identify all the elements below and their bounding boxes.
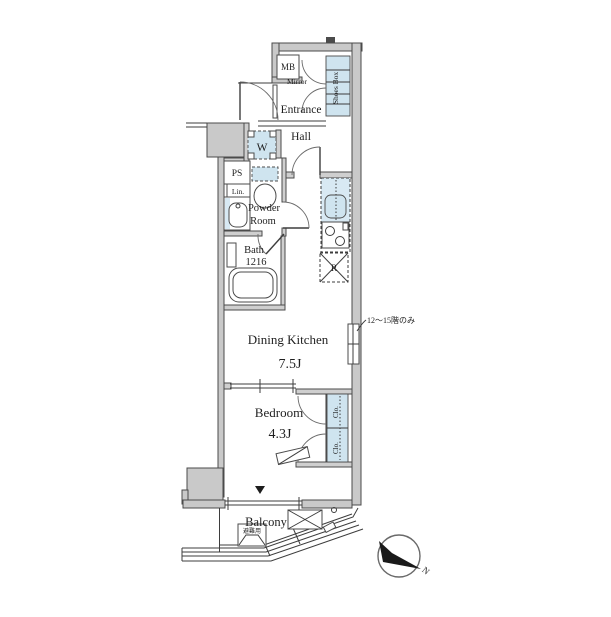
washer-label: W xyxy=(257,142,268,154)
powder-right-wall-upper xyxy=(282,158,286,202)
fridge-label: R xyxy=(331,264,338,274)
washer-pan-corner xyxy=(248,131,254,137)
bedroom-label: Bedroom xyxy=(255,405,303,420)
powder-room-label-1: Powder xyxy=(248,203,281,214)
bath-counter xyxy=(227,243,236,267)
bottom-wall-right xyxy=(302,500,352,508)
dining-kitchen-label: Dining Kitchen xyxy=(248,332,329,347)
bath-label-1: Bath xyxy=(244,245,265,256)
left-corridor-block xyxy=(207,123,244,157)
dk-bedroom-partition xyxy=(230,379,296,393)
balcony-label: Balcony xyxy=(245,515,287,529)
linen-label: Lin. xyxy=(232,187,244,196)
toilet-tank xyxy=(252,167,278,181)
bath-right-wall xyxy=(281,236,285,310)
closet-label-upper: Clo. xyxy=(332,406,340,418)
washbasin-bowl xyxy=(229,203,247,227)
bath-label-2: 1216 xyxy=(246,257,267,268)
bathtub-inner xyxy=(233,272,273,298)
entry-door-arc xyxy=(240,82,278,120)
bedroom-size: 4.3J xyxy=(269,427,293,442)
compass-north-label: N xyxy=(420,565,432,577)
dining-kitchen-size: 7.5J xyxy=(279,357,303,372)
bath-bottom-wall xyxy=(224,305,285,310)
washer-pan-corner xyxy=(248,153,254,159)
powder-door-arc xyxy=(283,202,309,228)
closet-top-wall xyxy=(296,389,352,394)
shoes-box-label: Shoes Box xyxy=(331,72,340,105)
closet-bottom-wall xyxy=(296,462,352,467)
mirror-label: Mirror xyxy=(287,77,307,86)
washer-right-wall xyxy=(276,130,281,158)
powder-room-label-2: Room xyxy=(250,216,276,227)
left-wall xyxy=(218,157,224,497)
dk-bedroom-wall-stub xyxy=(224,383,231,389)
hall-dk-wall-right xyxy=(320,172,352,178)
evacuation-hatch-label: 避難用 xyxy=(243,527,261,535)
stove-control xyxy=(343,223,348,230)
floor-note-label: 12〜15階のみ xyxy=(367,315,415,325)
top-wall-notch xyxy=(326,37,335,43)
bath-top-wall xyxy=(224,231,262,236)
floor-plan: MB Mirror Entrance Shoes Box Hall W PS L… xyxy=(0,0,611,617)
bottom-wall-left xyxy=(183,500,225,508)
ps-label: PS xyxy=(232,169,243,179)
bottom-left-block xyxy=(187,468,223,502)
hall-label: Hall xyxy=(291,131,311,143)
washer-pan-corner xyxy=(270,153,276,159)
dk-side-window xyxy=(348,320,366,364)
right-wall xyxy=(352,43,361,505)
compass xyxy=(378,535,421,577)
hall-dk-wall-left xyxy=(286,172,294,178)
entrance-label: Entrance xyxy=(281,104,322,116)
window-direction-marker xyxy=(255,486,265,494)
hall-dk-door-arc xyxy=(292,147,320,175)
floor-plan-drawing: MB Mirror Entrance Shoes Box Hall W PS L… xyxy=(0,0,611,617)
top-wall xyxy=(272,43,362,51)
closet-label-lower: Clo. xyxy=(332,442,340,454)
mb-label: MB xyxy=(281,62,295,72)
washer-pan-corner xyxy=(270,131,276,137)
